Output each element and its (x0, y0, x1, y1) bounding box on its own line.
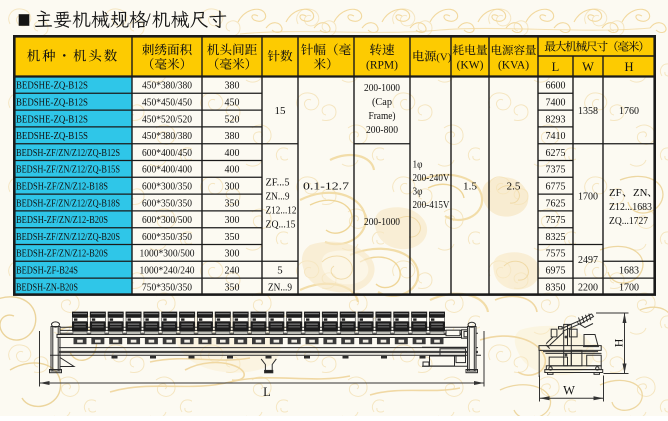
svg-text:600*350/350: 600*350/350 (142, 197, 192, 209)
svg-text:300: 300 (225, 248, 240, 260)
svg-text:ZQ...1727: ZQ...1727 (609, 215, 649, 227)
svg-text:2200: 2200 (578, 281, 598, 293)
svg-text:200-1000: 200-1000 (364, 82, 400, 94)
svg-text:7410: 7410 (546, 130, 566, 142)
svg-text:1.5: 1.5 (463, 181, 477, 193)
svg-text:BEDSHE-ZQ-B12S: BEDSHE-ZQ-B12S (16, 97, 88, 109)
svg-text:600*300/350: 600*300/350 (142, 181, 192, 193)
svg-text:6975: 6975 (546, 265, 566, 277)
svg-text:BEDSH-ZF/ZN/Z12/ZQ-B20S: BEDSH-ZF/ZN/Z12/ZQ-B20S (16, 231, 120, 243)
svg-text:ZN: ZN (633, 187, 648, 199)
svg-text:380: 380 (225, 130, 240, 142)
svg-text:6775: 6775 (546, 181, 566, 193)
svg-text:450*450/450: 450*450/450 (142, 97, 192, 109)
svg-text:600*400/400: 600*400/400 (142, 164, 192, 176)
svg-text:ZF: ZF (609, 187, 622, 199)
svg-text:ZN...9: ZN...9 (268, 281, 292, 293)
svg-text:BEDSHE-ZQ-B12S: BEDSHE-ZQ-B12S (16, 113, 88, 125)
svg-text:1000*300/500: 1000*300/500 (140, 248, 195, 260)
svg-text:2.5: 2.5 (507, 181, 521, 193)
svg-text:0.1-12.7: 0.1-12.7 (303, 181, 350, 193)
svg-text:350: 350 (225, 281, 240, 293)
svg-text:/: / (146, 11, 152, 31)
svg-text:BEDSH-ZF/ZN/Z12-B20S: BEDSH-ZF/ZN/Z12-B20S (16, 214, 108, 226)
svg-text:750*350/350: 750*350/350 (142, 281, 192, 293)
svg-text:600*300/500: 600*300/500 (142, 214, 192, 226)
svg-text:3φ: 3φ (413, 186, 423, 198)
svg-text:450: 450 (225, 97, 240, 109)
svg-text:600*400/450: 600*400/450 (142, 147, 192, 159)
svg-text:L: L (552, 60, 560, 74)
svg-text:BEDSHE-ZQ-B15S: BEDSHE-ZQ-B15S (16, 130, 88, 142)
svg-text:1760: 1760 (619, 105, 639, 117)
svg-text:BEDSHE-ZQ-B12S: BEDSHE-ZQ-B12S (16, 80, 88, 92)
svg-text:450*520/520: 450*520/520 (142, 113, 192, 125)
svg-text:200-240V: 200-240V (413, 172, 450, 184)
svg-text:1700: 1700 (619, 281, 639, 293)
svg-text:BEDSH-ZF/ZN/Z12-B20S: BEDSH-ZF/ZN/Z12-B20S (16, 248, 108, 260)
svg-text:(Cap: (Cap (372, 96, 392, 108)
svg-text:600*350/350: 600*350/350 (142, 231, 192, 243)
svg-text:(KVA): (KVA) (498, 59, 529, 71)
svg-text:ZQ...15: ZQ...15 (266, 218, 296, 230)
svg-text:ZN...9: ZN...9 (266, 190, 290, 202)
svg-text:BEDSH-ZF/ZN/Z12/ZQ-B12S: BEDSH-ZF/ZN/Z12/ZQ-B12S (16, 147, 120, 159)
svg-text:1000*240/240: 1000*240/240 (140, 265, 195, 277)
svg-text:350: 350 (225, 231, 240, 243)
svg-text:380: 380 (225, 80, 240, 92)
svg-text:400: 400 (225, 147, 240, 159)
svg-text:BEDSH-ZF/ZN/Z12-B18S: BEDSH-ZF/ZN/Z12-B18S (16, 181, 108, 193)
svg-text:7575: 7575 (546, 248, 566, 260)
svg-text:(RPM): (RPM) (366, 59, 398, 71)
svg-text:200-1000: 200-1000 (364, 216, 400, 228)
svg-text:8350: 8350 (546, 281, 566, 293)
svg-text:BEDSH-ZF/ZN/Z12/ZQ-B15S: BEDSH-ZF/ZN/Z12/ZQ-B15S (16, 164, 120, 176)
svg-text:H: H (624, 60, 633, 74)
svg-text:7575: 7575 (546, 214, 566, 226)
svg-text:1358: 1358 (578, 105, 598, 117)
svg-text:1700: 1700 (578, 191, 598, 203)
svg-text:5: 5 (277, 265, 282, 277)
svg-text:6600: 6600 (546, 80, 566, 92)
svg-text:300: 300 (225, 214, 240, 226)
svg-text:2497: 2497 (578, 254, 599, 266)
svg-text:W: W (582, 60, 594, 74)
svg-text:(V): (V) (436, 51, 451, 63)
svg-text:8293: 8293 (546, 113, 566, 125)
svg-text:240: 240 (225, 265, 240, 277)
svg-text:H: H (611, 338, 625, 347)
svg-text:BEDSH-ZN-B20S: BEDSH-ZN-B20S (16, 281, 78, 293)
svg-text:BEDSH-ZF-B24S: BEDSH-ZF-B24S (16, 265, 78, 277)
svg-text:450*380/380: 450*380/380 (142, 80, 192, 92)
svg-text:350: 350 (225, 197, 240, 209)
svg-text:(KW): (KW) (457, 59, 484, 71)
svg-text:7400: 7400 (546, 97, 566, 109)
svg-text:W: W (563, 384, 575, 398)
svg-text:300: 300 (225, 181, 240, 193)
svg-text:400: 400 (225, 164, 240, 176)
svg-text:6275: 6275 (546, 147, 566, 159)
svg-text:L: L (263, 385, 271, 399)
svg-text:7375: 7375 (546, 164, 566, 176)
svg-text:1683: 1683 (619, 265, 639, 277)
svg-text:1φ: 1φ (413, 159, 423, 171)
svg-text:BEDSH-ZF/ZN/Z12/ZQ-B18S: BEDSH-ZF/ZN/Z12/ZQ-B18S (16, 197, 120, 209)
svg-text:8325: 8325 (546, 231, 566, 243)
svg-text:200-800: 200-800 (366, 124, 398, 136)
svg-text:450*380/380: 450*380/380 (142, 130, 192, 142)
svg-text:ZF...5: ZF...5 (266, 176, 290, 188)
svg-text:Z12...1683: Z12...1683 (609, 201, 652, 213)
svg-text:Z12...12: Z12...12 (266, 204, 297, 216)
svg-text:7625: 7625 (546, 197, 566, 209)
svg-text:520: 520 (225, 113, 240, 125)
svg-text:15: 15 (275, 105, 286, 117)
svg-text:Frame): Frame) (369, 110, 396, 122)
svg-text:200-415V: 200-415V (413, 199, 450, 211)
